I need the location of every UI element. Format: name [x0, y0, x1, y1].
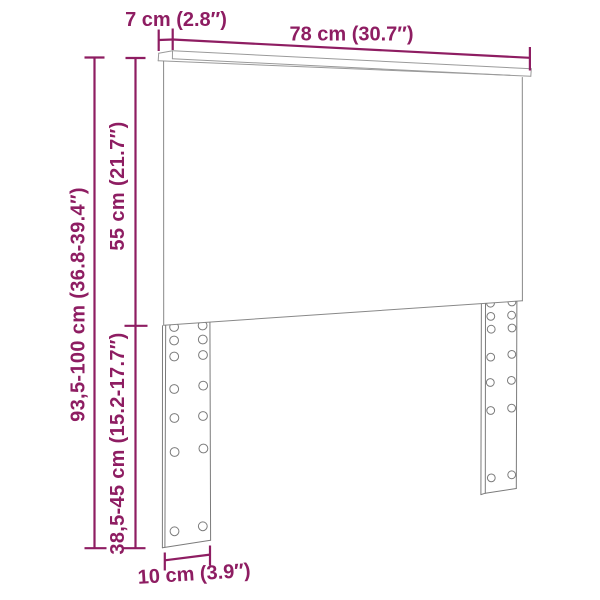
- svg-text:93,5-100 cm (36.8-39.4″): 93,5-100 cm (36.8-39.4″): [68, 187, 90, 422]
- svg-text:78 cm (30.7″): 78 cm (30.7″): [289, 24, 413, 46]
- svg-text:38,5-45 cm (15.2-17.7″): 38,5-45 cm (15.2-17.7″): [107, 332, 129, 554]
- svg-text:55 cm (21.7″): 55 cm (21.7″): [107, 121, 129, 250]
- svg-text:7 cm (2.8″): 7 cm (2.8″): [125, 9, 227, 31]
